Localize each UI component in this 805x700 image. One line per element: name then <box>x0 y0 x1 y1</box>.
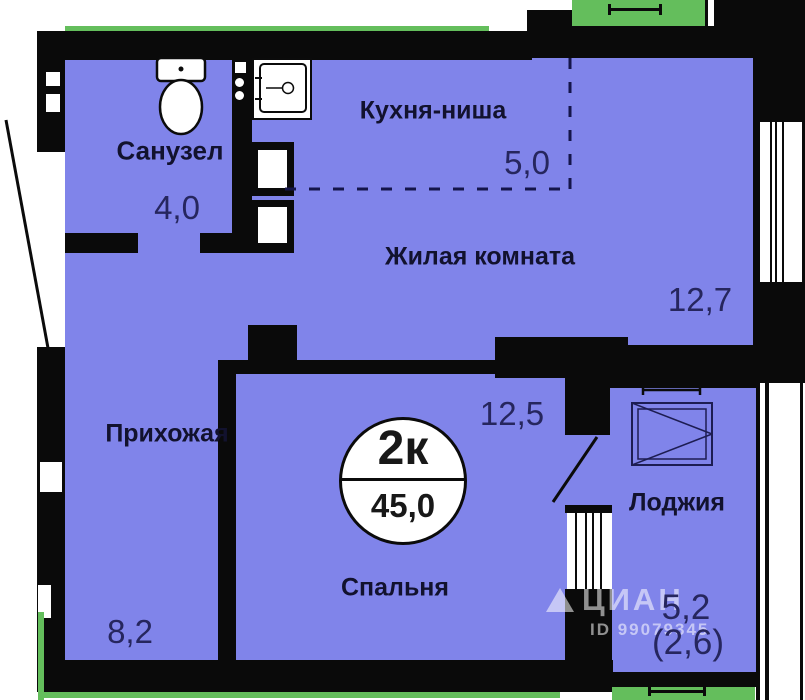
wall-left-notch-1 <box>40 462 62 492</box>
wall-bottom <box>37 660 613 692</box>
wall-living-bedroom <box>228 360 510 374</box>
wall-corner-top-right <box>717 0 805 58</box>
room-label-sanuzel: Санузел <box>117 136 224 167</box>
wall-hall-bedroom <box>218 360 236 660</box>
room-area-sanuzel: 4,0 <box>154 189 200 227</box>
shaft-circle-2 <box>235 91 244 100</box>
room-label-kitchen: Кухня-ниша <box>360 97 507 126</box>
kitchen-counter <box>252 58 312 120</box>
room-label-living: Жилая комната <box>385 243 575 272</box>
wall-loggia-top <box>610 345 757 388</box>
loggia-measure-bottom <box>650 690 705 693</box>
balcony-measure-top <box>610 8 660 11</box>
room-area-loggia-coeff: (2,6) <box>652 623 724 663</box>
window-right-mullion-2 <box>775 122 777 282</box>
shaft-square <box>235 62 246 73</box>
window-right-top-cap <box>753 115 805 122</box>
loggia-measure-bottom-tick-r <box>703 687 706 696</box>
unit-badge-area: 45,0 <box>371 481 435 531</box>
room-area-living: 12,7 <box>668 281 732 319</box>
room-area-bedroom: 12,5 <box>480 395 544 433</box>
room-area-hall: 8,2 <box>107 613 153 651</box>
floor-plan: ЦИАН ID 99079345 Санузел 4,0 Кухня-ниша … <box>0 0 805 700</box>
balcony-strip-left-corner <box>38 612 44 700</box>
unit-badge-rooms: 2к <box>378 420 429 478</box>
wall-vent-notch-1 <box>46 72 60 86</box>
wall-left-upper <box>37 31 65 152</box>
window-right-glass <box>760 122 802 282</box>
balcony-strip-bottom <box>43 692 560 698</box>
balcony-divider-line-1 <box>705 0 708 26</box>
wall-chunk-center <box>495 337 628 378</box>
kitchen-appliance-1-inner <box>258 150 287 188</box>
window-bedroom-mullion-1 <box>575 513 577 589</box>
balcony-measure-top-tick-r <box>659 4 662 15</box>
wall-right-mid <box>753 283 805 383</box>
window-right-inner-edge <box>753 122 760 282</box>
cian-logo-icon <box>546 588 574 612</box>
loggia-glazing-line-1 <box>756 383 760 700</box>
loggia-green-bottom <box>612 687 755 700</box>
loggia-glazing-outer <box>800 383 803 700</box>
balcony-divider-line-2 <box>714 0 717 26</box>
balcony-strip-top <box>65 26 489 31</box>
room-label-bedroom: Спальня <box>341 574 449 603</box>
loggia-glazing-line-2 <box>765 383 769 700</box>
balcony-block-top-right <box>572 0 705 26</box>
wall-top <box>37 31 532 60</box>
wall-bath-bottom-right <box>200 233 252 253</box>
room-area-kitchen: 5,0 <box>504 144 550 182</box>
window-bedroom-glass <box>567 513 612 589</box>
wall-loggia-bottom <box>610 672 757 687</box>
window-bedroom-mullion-2 <box>585 513 587 589</box>
room-label-hall: Прихожая <box>105 420 228 449</box>
window-bedroom-top-cap <box>565 505 612 513</box>
kitchen-appliance-2-inner <box>258 207 287 243</box>
wall-bath-bottom-left <box>65 233 138 253</box>
loggia-measure-bottom-tick-l <box>648 687 651 696</box>
shaft-circle-1 <box>235 78 244 87</box>
window-right-mullion-1 <box>770 122 772 282</box>
wall-stub-loggia-door <box>565 373 610 435</box>
wall-vent-notch-2 <box>46 94 60 112</box>
entrance-door-swing <box>6 120 48 348</box>
room-area-loggia: 5,2 <box>662 588 711 628</box>
wall-right-upper <box>753 58 805 122</box>
room-label-loggia: Лоджия <box>629 489 725 518</box>
window-bedroom-mullion-4 <box>600 513 602 589</box>
wall-corner-hall <box>248 325 297 362</box>
window-right-mullion-3 <box>782 122 784 282</box>
balcony-measure-top-tick-l <box>608 4 611 15</box>
window-bedroom-mullion-3 <box>592 513 594 589</box>
unit-badge: 2к 45,0 <box>339 417 467 545</box>
